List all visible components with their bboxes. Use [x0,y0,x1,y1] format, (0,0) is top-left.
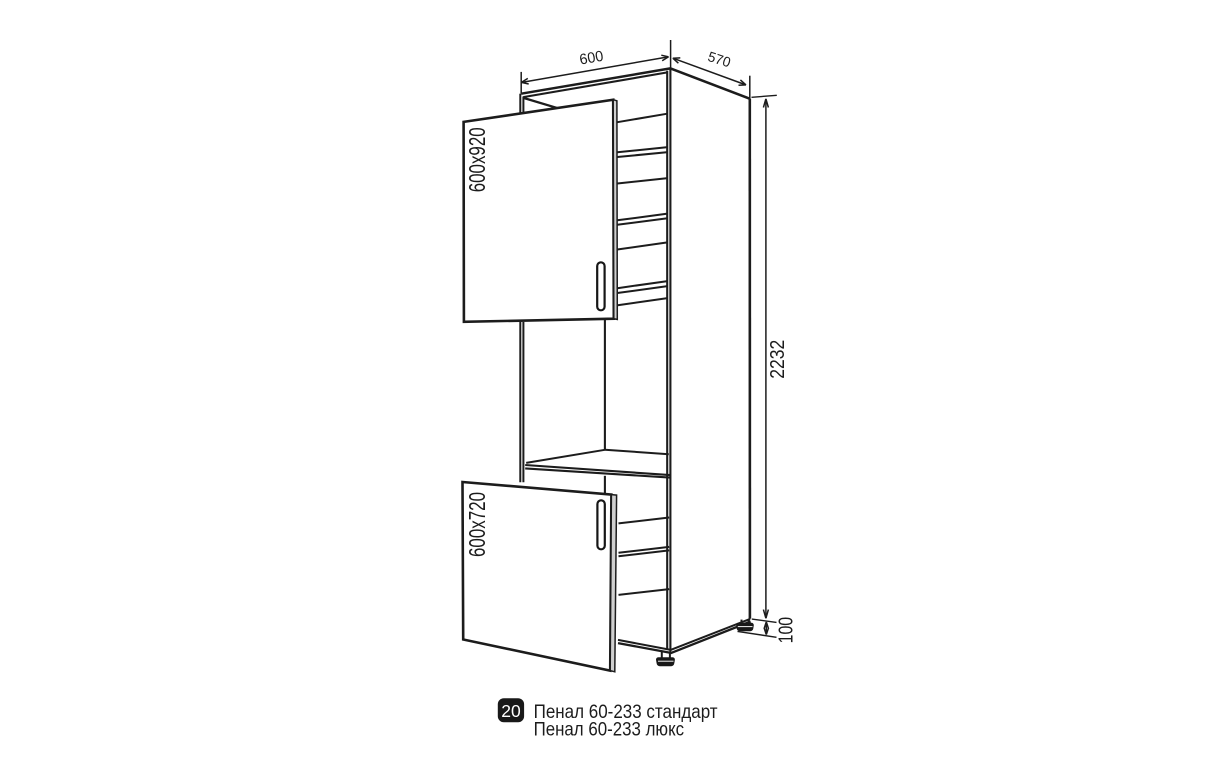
svg-text:100: 100 [774,617,797,644]
svg-text:600x720: 600x720 [464,492,490,557]
svg-text:20: 20 [501,701,521,721]
svg-text:2232: 2232 [766,340,789,379]
svg-text:600x920: 600x920 [464,127,490,192]
svg-text:Пенал 60-233 люкс: Пенал 60-233 люкс [534,719,685,741]
